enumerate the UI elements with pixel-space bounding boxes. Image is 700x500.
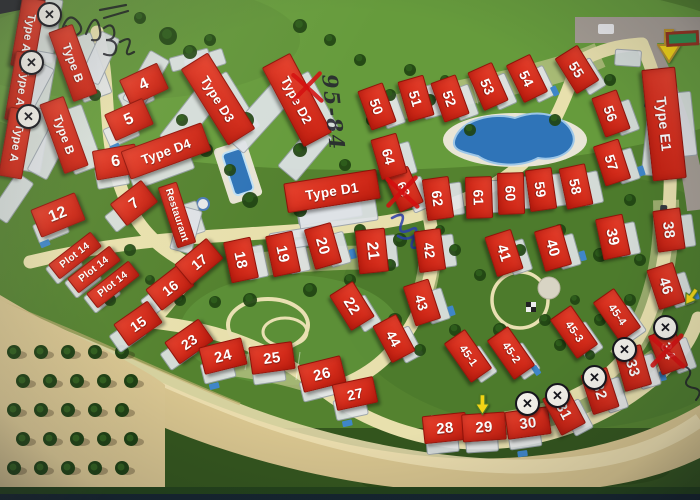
green-sign-board (666, 30, 700, 47)
roundabout (197, 198, 209, 210)
checker-marker (526, 302, 536, 312)
terrain-map (0, 0, 700, 500)
lagoon-pool (443, 113, 587, 167)
map-canvas: Type AType AType AType BType B456712Plot… (0, 0, 700, 500)
